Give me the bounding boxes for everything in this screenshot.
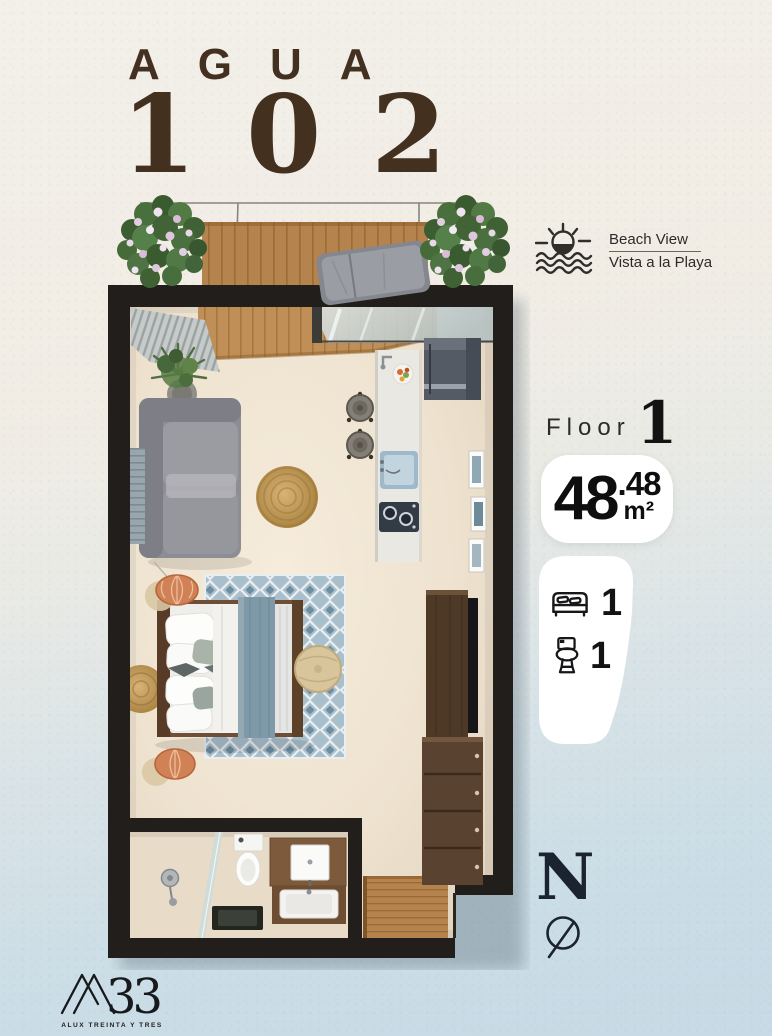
- bed-icon: [549, 589, 591, 617]
- planter-right: [420, 195, 510, 288]
- tv-screen: [468, 598, 478, 733]
- sink: [380, 451, 418, 489]
- bedroom-feature: 1: [549, 584, 622, 622]
- floor-value: 1: [637, 400, 677, 448]
- wall-hanging: [130, 448, 145, 544]
- double-bed: [155, 597, 315, 753]
- sun-over-waves-icon: [535, 222, 599, 278]
- logo-a-shape: [62, 975, 98, 1013]
- beach-view-label-es: Vista a la Playa: [609, 254, 712, 271]
- entry-wood-floor: [363, 876, 456, 938]
- unit-number: 102: [121, 81, 496, 189]
- features-card: 1 1: [537, 554, 637, 746]
- flyer-page: AGUA 102: [0, 0, 772, 1036]
- compass-needle-icon: [545, 912, 591, 962]
- toilet: [234, 834, 263, 886]
- dresser: [422, 737, 483, 885]
- sofa: [139, 398, 252, 570]
- a33-logo-mark: 33: [60, 969, 164, 1015]
- logo-tagline: ALUX TREINTA Y TRES: [58, 1022, 166, 1029]
- wall-art: [469, 451, 486, 572]
- bedroom-count: 1: [601, 584, 622, 622]
- floor-label: Floor: [546, 414, 631, 442]
- floor-indicator: Floor 1: [546, 400, 677, 448]
- refrigerator: [424, 338, 481, 400]
- bathroom-feature: 1: [554, 636, 611, 676]
- area-unit: m²: [624, 499, 661, 524]
- north-indicator: N: [536, 846, 595, 962]
- sliding-glass-door: [312, 307, 493, 343]
- tv-console: [426, 590, 478, 737]
- area-decimal: .48: [618, 467, 661, 500]
- north-label: N: [536, 846, 595, 910]
- entry-threshold: [453, 893, 456, 938]
- pouf: [295, 646, 341, 692]
- planter-left: [117, 195, 207, 288]
- bathroom: [122, 818, 362, 938]
- cooktop: [379, 502, 419, 532]
- beach-view-divider: [609, 251, 701, 252]
- toilet-icon: [554, 636, 580, 676]
- area-card: 48 .48 m²: [541, 455, 673, 543]
- vanity: [270, 838, 346, 924]
- kitchen-counter: [375, 350, 422, 562]
- fruit-bowl: [393, 364, 413, 384]
- beach-view-label-en: Beach View: [609, 231, 712, 248]
- jute-rug: [256, 466, 318, 528]
- area-value: 48: [554, 468, 617, 530]
- brand-logo: 33 ALUX TREINTA Y TRES: [58, 969, 166, 1029]
- beach-view-badge: Beach View Vista a la Playa: [535, 222, 712, 278]
- logo-numerals: 33: [106, 969, 160, 1015]
- bathroom-count: 1: [590, 637, 611, 675]
- floor-plan: [90, 190, 530, 970]
